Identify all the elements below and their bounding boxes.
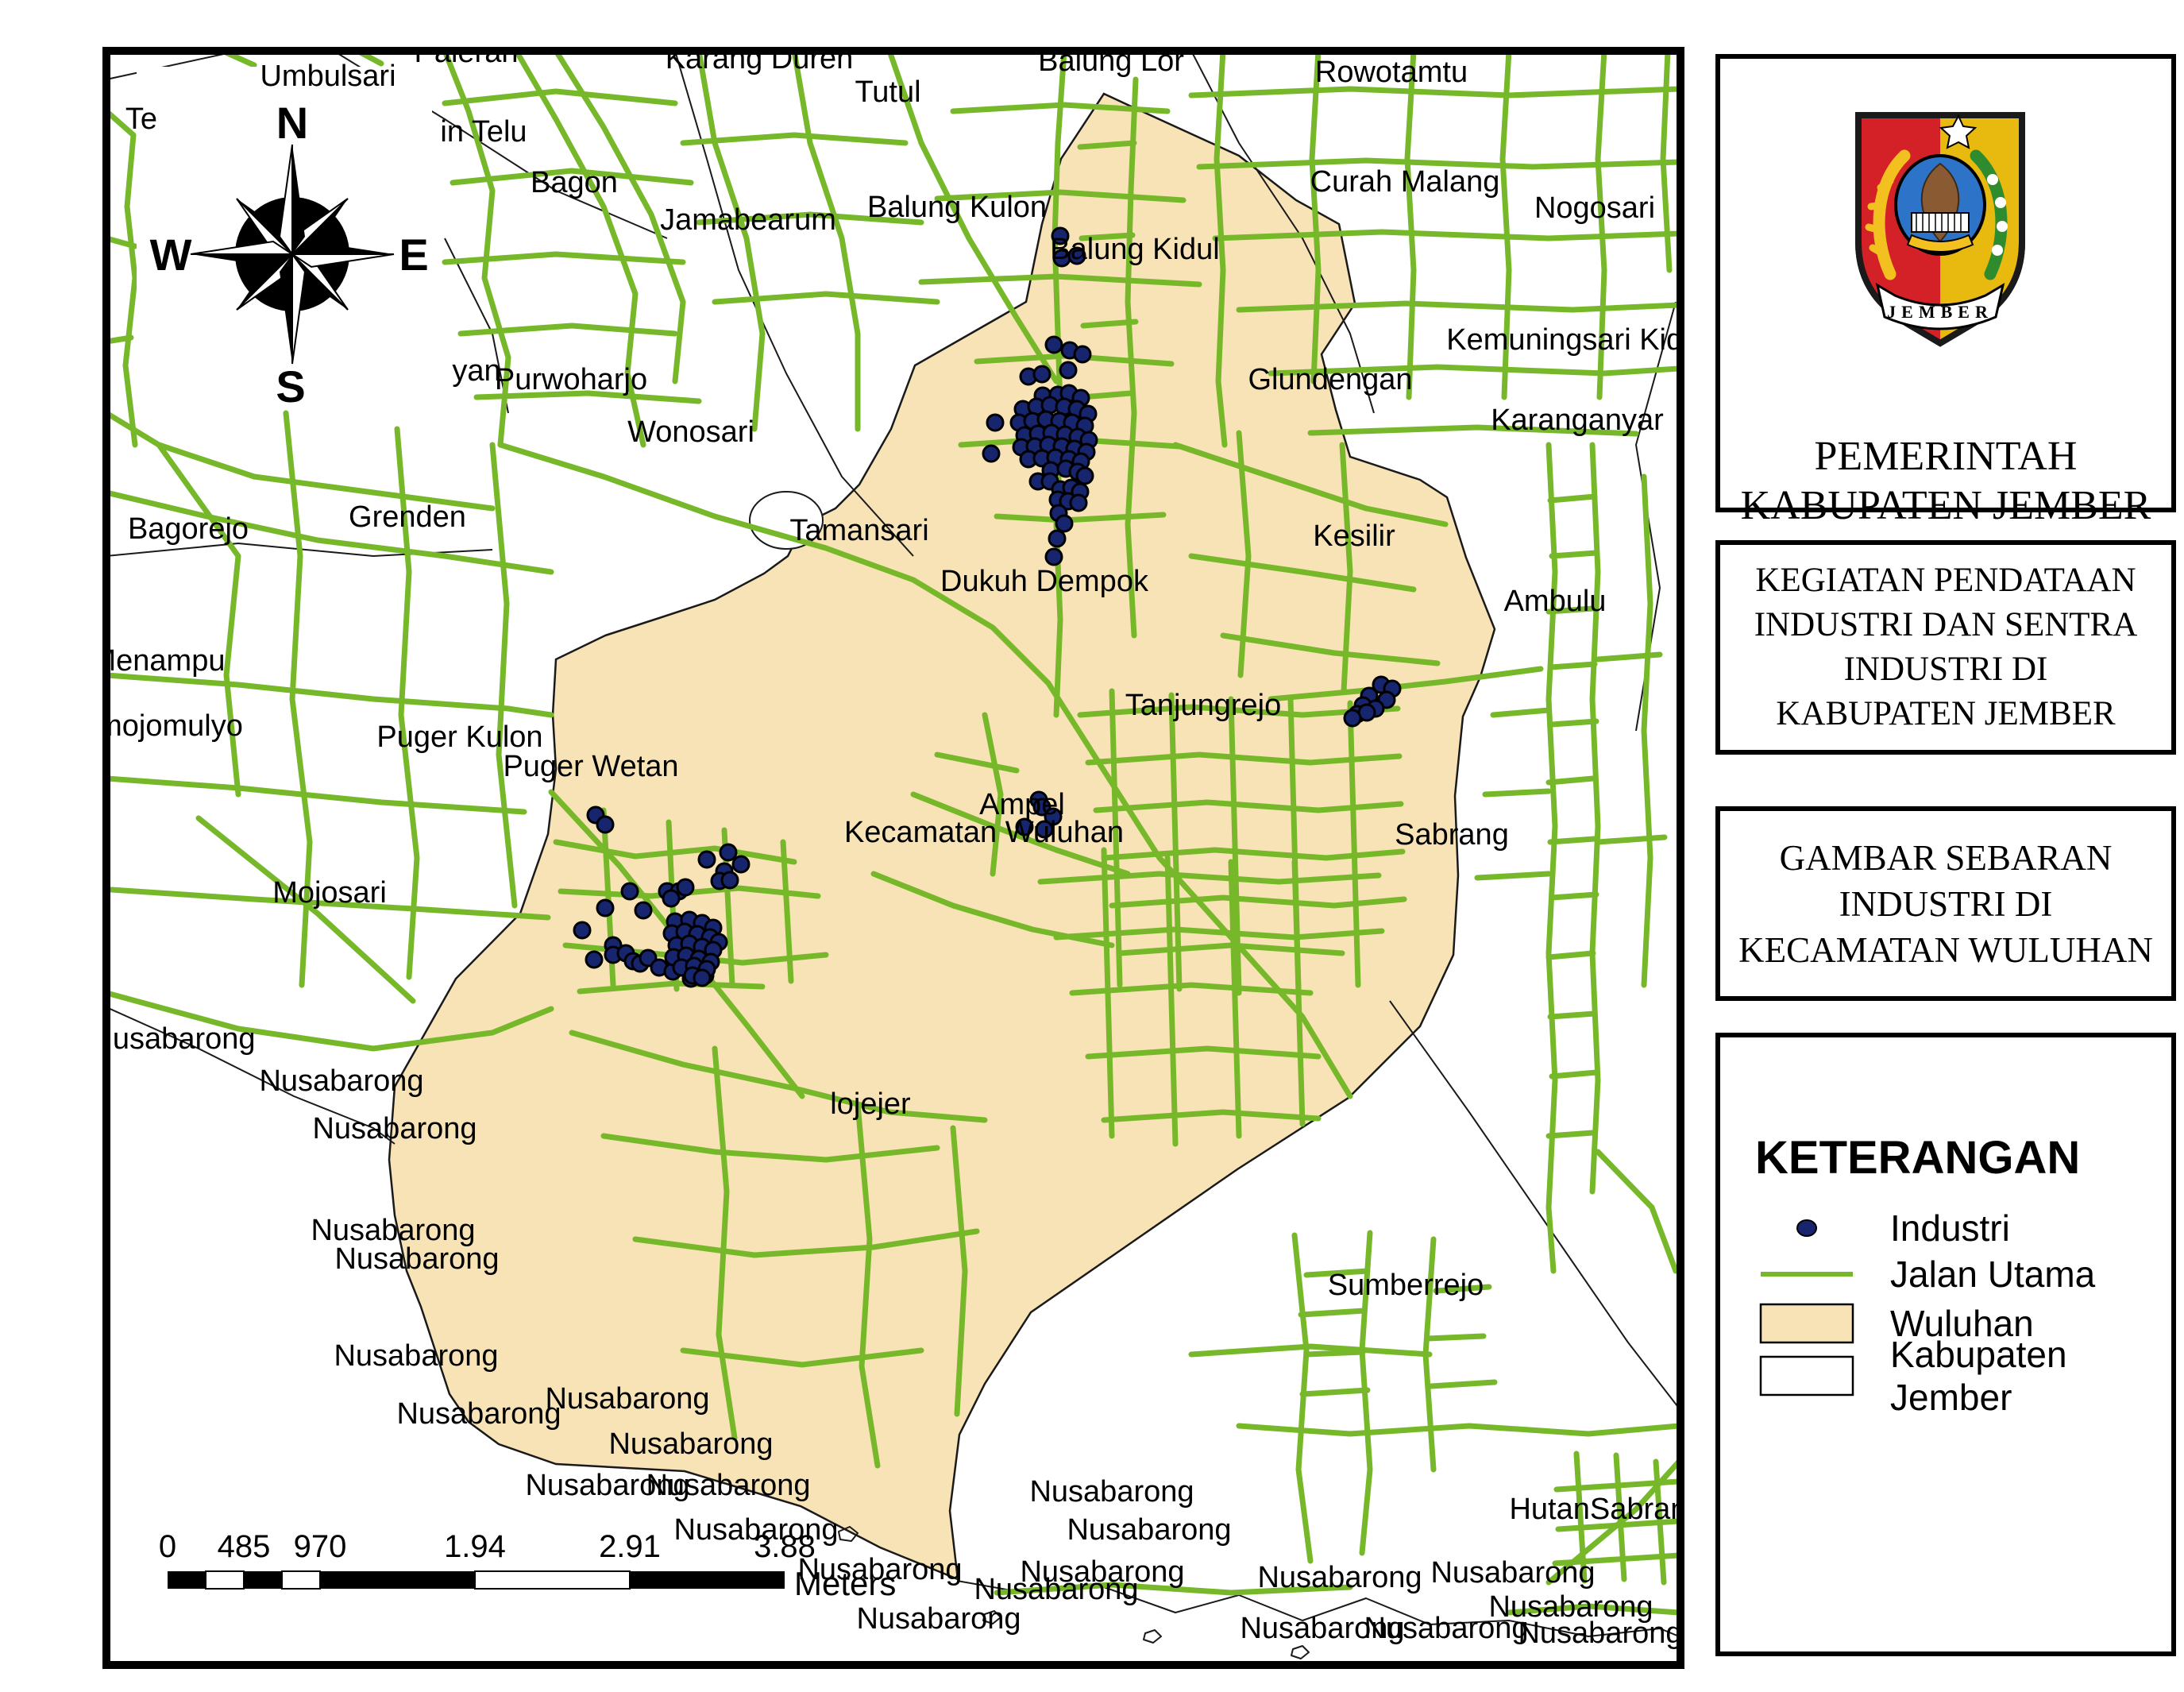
activity-title-line: KABUPATEN JEMBER bbox=[1720, 692, 2171, 736]
industry-point bbox=[694, 970, 710, 986]
map-place-label: Jamabearum bbox=[660, 203, 836, 237]
crest-banner-text: JEMBER bbox=[1887, 302, 1993, 322]
industry-dot-icon bbox=[1754, 1216, 1860, 1240]
map-place-label: Nusabarong bbox=[545, 1382, 709, 1416]
activity-title-line: INDUSTRI DI bbox=[1720, 647, 2171, 692]
map-place-label: Nogosari bbox=[1534, 191, 1655, 225]
industry-point bbox=[1056, 516, 1072, 531]
map-place-label: Tamansari bbox=[789, 514, 928, 547]
map-place-label: Nusabarong bbox=[396, 1397, 561, 1431]
industry-point bbox=[1345, 710, 1360, 726]
scalebar-tick: 970 bbox=[294, 1529, 347, 1564]
map-place-label: Puger Kulon bbox=[376, 720, 542, 754]
legend-box: KETERANGAN Industri Jalan Utama Wuluhan … bbox=[1715, 1033, 2176, 1656]
scalebar-tick: 0 bbox=[159, 1529, 176, 1564]
scalebar-unit: Meters bbox=[794, 1565, 896, 1602]
industry-point bbox=[1077, 468, 1093, 484]
map-place-label: Wonosari bbox=[627, 415, 754, 449]
map-place-label: lojejer bbox=[830, 1087, 911, 1121]
compass-letter: W bbox=[150, 230, 192, 280]
industry-point bbox=[1071, 495, 1086, 511]
legend-label: Kabupaten Jember bbox=[1860, 1333, 2171, 1419]
map-place-label: Nusabarong bbox=[334, 1242, 499, 1276]
map-place-label: Nusabarong bbox=[974, 1573, 1138, 1606]
industry-point bbox=[699, 852, 715, 867]
legend-item-jalan-utama: Jalan Utama bbox=[1720, 1251, 2171, 1297]
map-place-label: Balung Kidul bbox=[1050, 233, 1219, 266]
map-place-label: HutanSabrang bbox=[1509, 1493, 1704, 1526]
map-place-label: Umbulsari bbox=[260, 60, 396, 93]
wuluhan-swatch-icon bbox=[1754, 1303, 1860, 1344]
activity-title-line: KEGIATAN PENDATAAN bbox=[1720, 558, 2171, 603]
map-place-label: Nusabarong bbox=[259, 1064, 423, 1098]
map-place-label: Menampu bbox=[91, 644, 226, 678]
legend-label: Industri bbox=[1860, 1207, 2010, 1250]
scalebar-tick: 1.94 bbox=[444, 1529, 506, 1564]
map-place-label: Nusabarong bbox=[856, 1602, 1021, 1636]
map-place-label: Bagorejo bbox=[128, 512, 249, 546]
map-place-label: Nusabarong bbox=[646, 1469, 810, 1502]
jember-crest: JEMBER bbox=[1715, 79, 2176, 350]
legend-title: KETERANGAN bbox=[1720, 1037, 2171, 1205]
scalebar-tick: 485 bbox=[218, 1529, 271, 1564]
north-arrow: NWES bbox=[137, 67, 432, 411]
map-place-label: Karanganyar bbox=[1491, 404, 1664, 437]
industry-point bbox=[574, 922, 590, 938]
map-place-label: Kesilir bbox=[1313, 520, 1395, 553]
industry-point bbox=[1049, 531, 1065, 547]
legend-item-industri: Industri bbox=[1720, 1205, 2171, 1251]
industry-point bbox=[586, 952, 602, 968]
map-place-label: Ambulu bbox=[1504, 585, 1607, 618]
government-title-line: PEMERINTAH bbox=[1720, 432, 2171, 481]
map-place-label: Curah Malang bbox=[1310, 165, 1500, 199]
industry-point bbox=[1046, 337, 1062, 353]
map-place-label: Tanjungrejo bbox=[1125, 689, 1281, 722]
map-layout-page: NWES TePaleranUmbulsariin TeluKarang Dur… bbox=[0, 0, 2184, 1688]
map-place-label: Nusabarong bbox=[312, 1112, 477, 1145]
industry-point bbox=[722, 872, 738, 888]
scalebar-tick: 3.88 bbox=[754, 1529, 816, 1564]
industry-point bbox=[1034, 366, 1050, 382]
industry-point bbox=[733, 856, 749, 872]
industry-point bbox=[1060, 362, 1076, 378]
map-place-label: Nusabarong bbox=[1430, 1556, 1595, 1590]
title-box-activity: KEGIATAN PENDATAAN INDUSTRI DAN SENTRA I… bbox=[1715, 540, 2176, 755]
legend-label: Jalan Utama bbox=[1860, 1253, 2095, 1296]
map-place-label: Balung Kulon bbox=[867, 191, 1047, 224]
title-box-figure: GAMBAR SEBARAN INDUSTRI DI KECAMATAN WUL… bbox=[1715, 806, 2176, 1001]
map-place-label: Nusabarong bbox=[334, 1339, 498, 1373]
map-place-label: Grenden bbox=[349, 500, 466, 534]
map-place-label: Glundengan bbox=[1248, 363, 1412, 396]
map-place-label: Nusabarong bbox=[91, 1022, 255, 1056]
map-place-label: Nusabarong bbox=[1067, 1513, 1231, 1547]
map-place-label: Nusabarong bbox=[1518, 1617, 1682, 1650]
industry-point bbox=[987, 415, 1003, 431]
compass-letter: E bbox=[399, 230, 428, 280]
industry-point bbox=[622, 883, 638, 899]
map-place-label: Rowotamtu bbox=[1315, 56, 1468, 89]
map-place-label: Tutul bbox=[855, 75, 920, 109]
industry-point bbox=[597, 900, 613, 916]
road-line-icon bbox=[1754, 1269, 1860, 1279]
kabupaten-swatch-icon bbox=[1754, 1355, 1860, 1396]
map-place-label: Nusabarong bbox=[608, 1427, 773, 1461]
industry-point bbox=[635, 902, 651, 918]
industry-point bbox=[1075, 346, 1090, 362]
industry-point bbox=[983, 446, 999, 462]
map-place-label: Nusabarong bbox=[1029, 1475, 1194, 1509]
map-place-label: Bagon bbox=[531, 166, 618, 199]
figure-title-line: INDUSTRI DI bbox=[1720, 881, 2171, 927]
legend-item-kabupaten-jember: Kabupaten Jember bbox=[1720, 1350, 2171, 1402]
figure-title-line: KECAMATAN WULUHAN bbox=[1720, 927, 2171, 973]
map-place-label: Kemuningsari Kidul bbox=[1446, 323, 1706, 357]
industry-point bbox=[597, 817, 613, 832]
map-place-label: Sumberrejo bbox=[1328, 1269, 1484, 1302]
industry-point bbox=[720, 844, 736, 860]
industry-point bbox=[1046, 549, 1062, 565]
map-place-label: Dukuh Dempok bbox=[940, 565, 1149, 598]
scalebar-tick: 2.91 bbox=[599, 1529, 661, 1564]
industry-point bbox=[663, 890, 679, 906]
map-place-label: mojomulyo bbox=[97, 709, 243, 743]
compass-letter: S bbox=[276, 361, 305, 411]
map-place-label: Kecamatan Wuluhan bbox=[844, 816, 1124, 849]
map-place-label: Nusabarong bbox=[1364, 1612, 1528, 1645]
figure-title-line: GAMBAR SEBARAN bbox=[1720, 835, 2171, 881]
industry-point bbox=[677, 879, 693, 895]
map-place-label: Puger Wetan bbox=[503, 750, 678, 783]
map-place-label: Nusabarong bbox=[1257, 1561, 1422, 1594]
activity-title-line: INDUSTRI DAN SENTRA bbox=[1720, 603, 2171, 647]
compass-letter: N bbox=[276, 98, 308, 148]
government-title-line: KABUPATEN JEMBER bbox=[1720, 481, 2171, 531]
map-place-label: Purwoharjo bbox=[495, 363, 647, 396]
map-place-label: Sabrang bbox=[1395, 818, 1509, 852]
map-place-label: yan bbox=[452, 354, 500, 388]
map-place-label: Mojosari bbox=[272, 876, 387, 910]
map-place-label: in Telu bbox=[440, 115, 527, 149]
map-place-label: Te bbox=[125, 102, 157, 136]
